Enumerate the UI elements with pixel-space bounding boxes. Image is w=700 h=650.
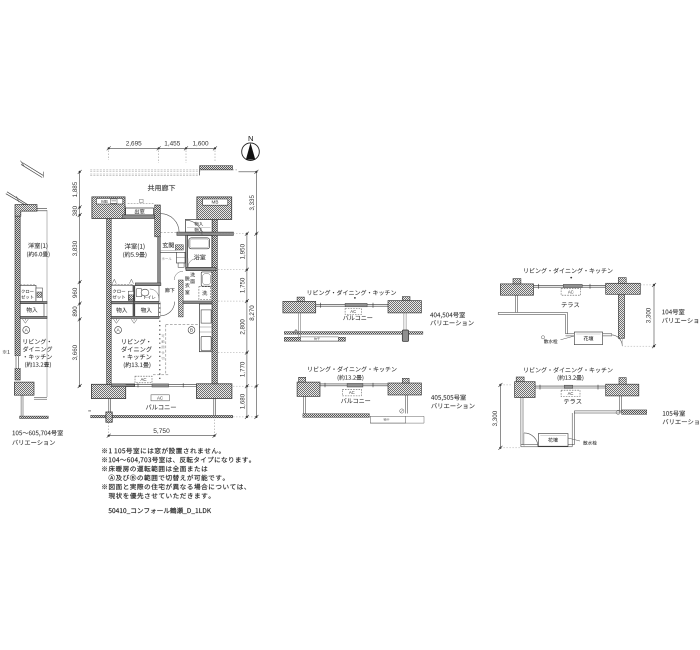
svg-text:AC: AC [568,391,574,396]
svg-text:1,455: 1,455 [164,141,180,148]
svg-text:AC: AC [349,390,355,395]
svg-text:MB: MB [101,199,108,204]
svg-text:890: 890 [72,306,79,317]
svg-text:N: N [248,134,253,143]
svg-text:AC: AC [157,395,163,400]
svg-text:1,680: 1,680 [239,393,246,409]
svg-text:5,750: 5,750 [153,428,170,435]
svg-text:3,660: 3,660 [72,344,79,360]
svg-text:960: 960 [72,287,79,298]
svg-text:1,600: 1,600 [193,141,209,148]
svg-text:3,830: 3,830 [72,240,79,256]
svg-text:1,950: 1,950 [239,243,246,259]
svg-text:3,335: 3,335 [249,194,256,210]
svg-text:2,695: 2,695 [126,141,142,148]
svg-text:1,770: 1,770 [239,361,246,377]
svg-text:1,885: 1,885 [72,181,79,197]
svg-text:380: 380 [72,205,79,216]
svg-text:AC: AC [568,289,574,294]
svg-text:3,300: 3,300 [645,307,652,323]
svg-text:AC: AC [140,377,146,382]
svg-text:AC: AC [350,309,356,314]
svg-text:8,270: 8,270 [249,305,256,321]
svg-text:3,300: 3,300 [492,410,499,426]
svg-text:1,750: 1,750 [239,277,246,293]
svg-text:MB: MB [212,200,219,205]
svg-text:2,800: 2,800 [239,319,246,335]
svg-text:B: B [190,328,193,334]
